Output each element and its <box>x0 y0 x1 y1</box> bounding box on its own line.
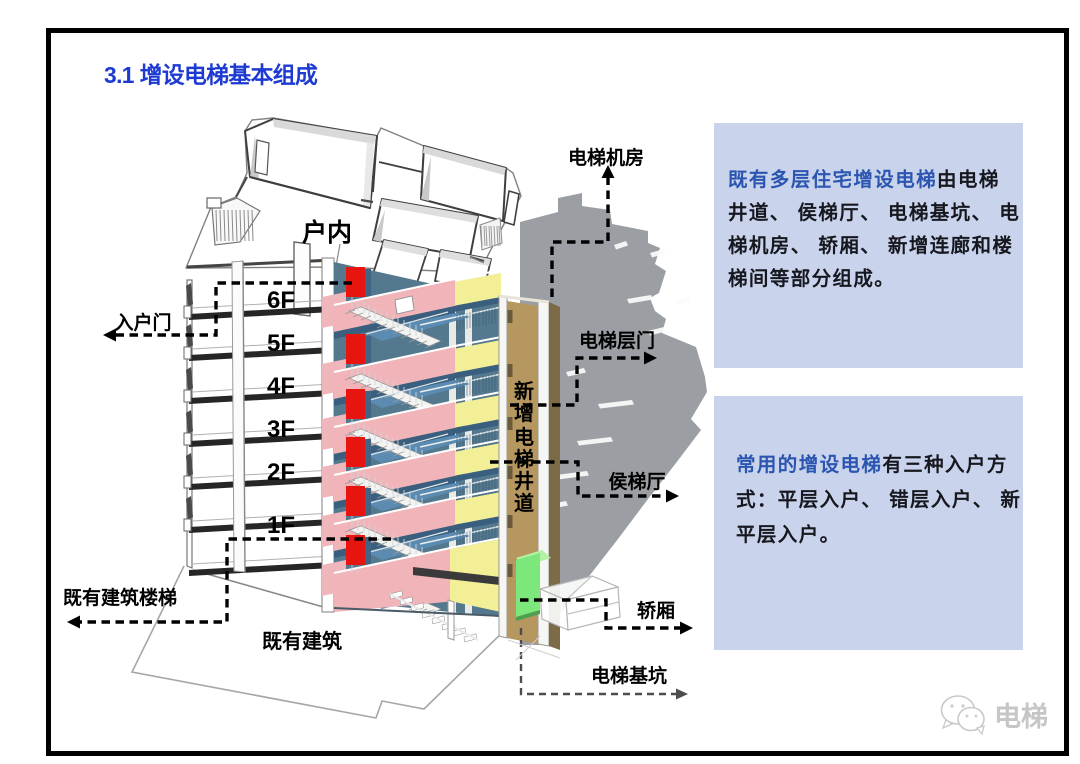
svg-text:1F: 1F <box>267 512 295 539</box>
svg-text:2F: 2F <box>267 459 295 486</box>
svg-text:侯梯厅: 侯梯厅 <box>608 470 665 493</box>
svg-text:电梯: 电梯 <box>994 702 1048 732</box>
svg-text:户内: 户内 <box>302 218 352 247</box>
svg-text:井: 井 <box>514 470 534 493</box>
svg-text:电: 电 <box>514 426 534 449</box>
svg-text:4F: 4F <box>267 373 295 400</box>
svg-text:既有建筑楼梯: 既有建筑楼梯 <box>63 586 177 609</box>
svg-text:5F: 5F <box>267 330 295 357</box>
svg-text:新: 新 <box>514 379 534 403</box>
svg-text:电梯机房: 电梯机房 <box>568 146 644 169</box>
svg-text:道: 道 <box>514 491 534 515</box>
svg-text:既有建筑: 既有建筑 <box>262 629 342 653</box>
svg-text:梯: 梯 <box>514 447 534 471</box>
svg-text:3F: 3F <box>267 416 295 443</box>
svg-text:6F: 6F <box>267 287 295 314</box>
svg-text:电梯层门: 电梯层门 <box>579 329 655 352</box>
svg-text:电梯基坑: 电梯基坑 <box>591 664 667 687</box>
svg-text:轿厢: 轿厢 <box>637 599 675 622</box>
svg-text:入户门: 入户门 <box>114 311 171 334</box>
